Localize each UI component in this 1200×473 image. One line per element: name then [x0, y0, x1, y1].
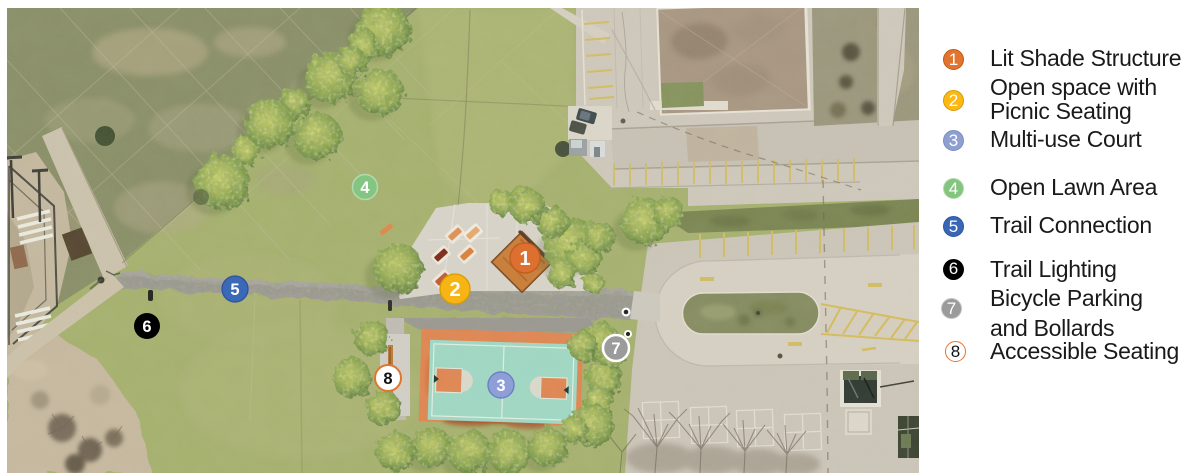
svg-text:5: 5 — [230, 281, 239, 299]
svg-text:2: 2 — [449, 279, 460, 301]
svg-text:6: 6 — [142, 318, 151, 336]
svg-text:1: 1 — [519, 248, 530, 270]
svg-text:8: 8 — [383, 370, 392, 388]
svg-text:7: 7 — [611, 340, 620, 358]
svg-text:4: 4 — [360, 179, 370, 197]
svg-text:3: 3 — [496, 377, 505, 395]
